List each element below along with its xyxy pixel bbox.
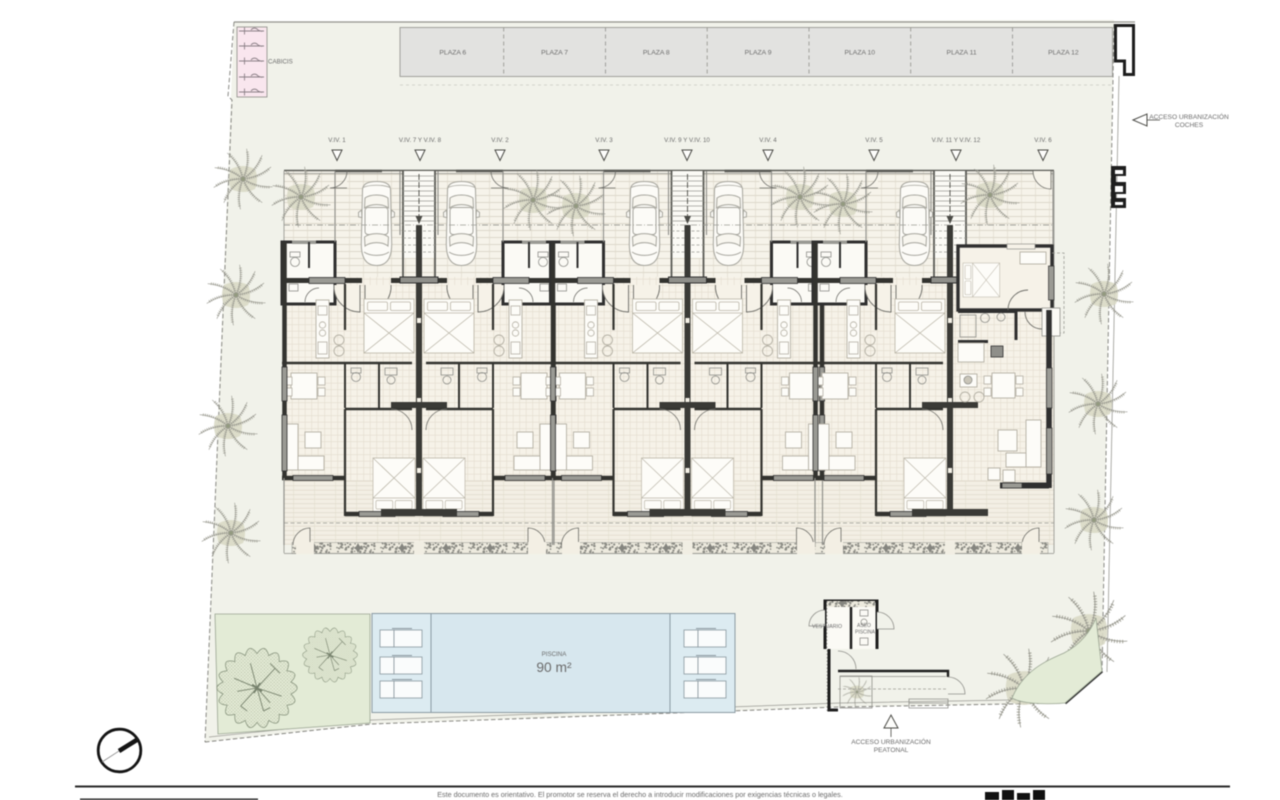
svg-text:V.IV. 4: V.IV. 4 <box>759 137 777 144</box>
svg-text:PLAZA 6: PLAZA 6 <box>439 50 466 57</box>
svg-text:V.IV. 2: V.IV. 2 <box>491 137 509 144</box>
svg-text:PLAZA 7: PLAZA 7 <box>541 50 568 57</box>
svg-text:ACCESO URBANIZACIÓN: ACCESO URBANIZACIÓN <box>851 737 931 746</box>
svg-text:CABICIS: CABICIS <box>268 59 293 66</box>
svg-text:PLAZA 12: PLAZA 12 <box>1048 50 1079 57</box>
svg-text:PEATONAL: PEATONAL <box>874 747 909 754</box>
svg-text:COCHES: COCHES <box>1175 122 1204 129</box>
svg-text:V.IV. 6: V.IV. 6 <box>1034 137 1052 144</box>
svg-text:ASEO: ASEO <box>857 623 871 629</box>
svg-text:V.IV. 5: V.IV. 5 <box>865 137 883 144</box>
svg-text:V.IV. 11 Y V.IV. 12: V.IV. 11 Y V.IV. 12 <box>932 137 981 144</box>
svg-text:V.IV. 3: V.IV. 3 <box>595 137 613 144</box>
svg-text:V.IV. 7 Y V.IV. 8: V.IV. 7 Y V.IV. 8 <box>399 137 442 144</box>
svg-text:PLAZA 10: PLAZA 10 <box>844 50 875 57</box>
svg-text:PLAZA 9: PLAZA 9 <box>745 50 772 57</box>
svg-text:90 m²: 90 m² <box>536 660 572 675</box>
svg-text:V.IV. 1: V.IV. 1 <box>328 137 346 144</box>
svg-text:Este documento es orientativo.: Este documento es orientativo. El promot… <box>437 790 843 799</box>
svg-text:PLAZA 8: PLAZA 8 <box>643 50 670 57</box>
svg-text:PLAZA 11: PLAZA 11 <box>947 50 977 57</box>
svg-text:ACCESO URBANIZACIÓN: ACCESO URBANIZACIÓN <box>1149 112 1229 121</box>
svg-text:V.IV. 9 Y V.IV. 10: V.IV. 9 Y V.IV. 10 <box>664 137 710 144</box>
svg-text:PISCINA: PISCINA <box>542 651 568 658</box>
svg-text:PISCINA: PISCINA <box>855 630 876 636</box>
